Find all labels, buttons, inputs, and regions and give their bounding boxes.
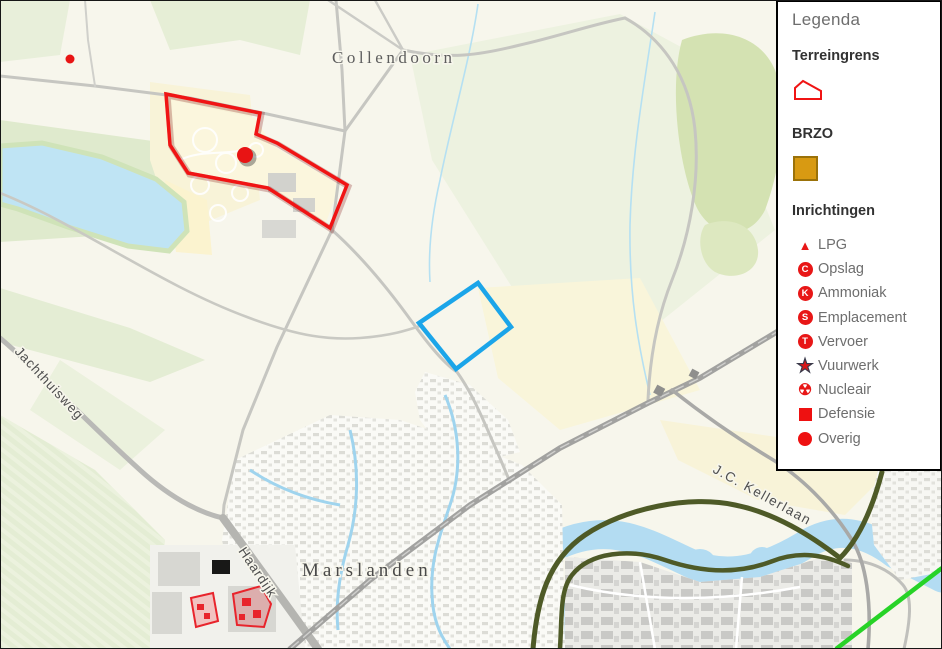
- legend-item-ammoniak: K Ammoniak: [792, 281, 930, 305]
- opslag-circle-icon: C: [792, 262, 818, 277]
- risk-parcel-1[interactable]: [191, 593, 218, 627]
- legend-item-vervoer: T Vervoer: [792, 330, 930, 354]
- legend-title: Legenda: [792, 10, 930, 30]
- legend-item-defensie: Defensie: [792, 402, 930, 426]
- emplacement-circle-icon: S: [792, 310, 818, 325]
- lpg-triangle-icon: ▲: [792, 238, 818, 253]
- defensie-square-icon: [792, 408, 818, 421]
- brzo-icon: [793, 156, 818, 181]
- legend-item-lpg: ▲ LPG: [792, 233, 930, 257]
- vuurwerk-star-icon: ★: [792, 357, 818, 376]
- legend-section-inrichtingen: Inrichtingen ▲ LPG C Opslag K Ammoniak S…: [792, 203, 930, 451]
- place-label-marslanden: Marslanden: [302, 560, 432, 581]
- overig-marker-dot[interactable]: [237, 147, 253, 163]
- map-viewer: Collendoorn Marslanden Jachthuisweg Haar…: [0, 0, 942, 649]
- legend-section-brzo: BRZO: [792, 126, 930, 181]
- vervoer-circle-icon: T: [792, 334, 818, 349]
- legend-item-emplacement: S Emplacement: [792, 306, 930, 330]
- nucleair-icon: ☢: [792, 380, 818, 400]
- legend-item-vuurwerk: ★ Vuurwerk: [792, 354, 930, 378]
- terreingrens-icon: [793, 78, 825, 104]
- overig-circle-icon: [792, 432, 818, 446]
- small-red-marker[interactable]: [66, 55, 75, 64]
- place-label-collendoorn: Collendoorn: [332, 48, 456, 67]
- legend-panel: Legenda Terreingrens BRZO Inrichtingen ▲…: [776, 0, 942, 471]
- legend-item-opslag: C Opslag: [792, 257, 930, 281]
- ammoniak-circle-icon: K: [792, 286, 818, 301]
- legend-item-nucleair: ☢ Nucleair: [792, 378, 930, 402]
- legend-item-overig: Overig: [792, 427, 930, 451]
- legend-section-terreingrens: Terreingrens: [792, 48, 930, 104]
